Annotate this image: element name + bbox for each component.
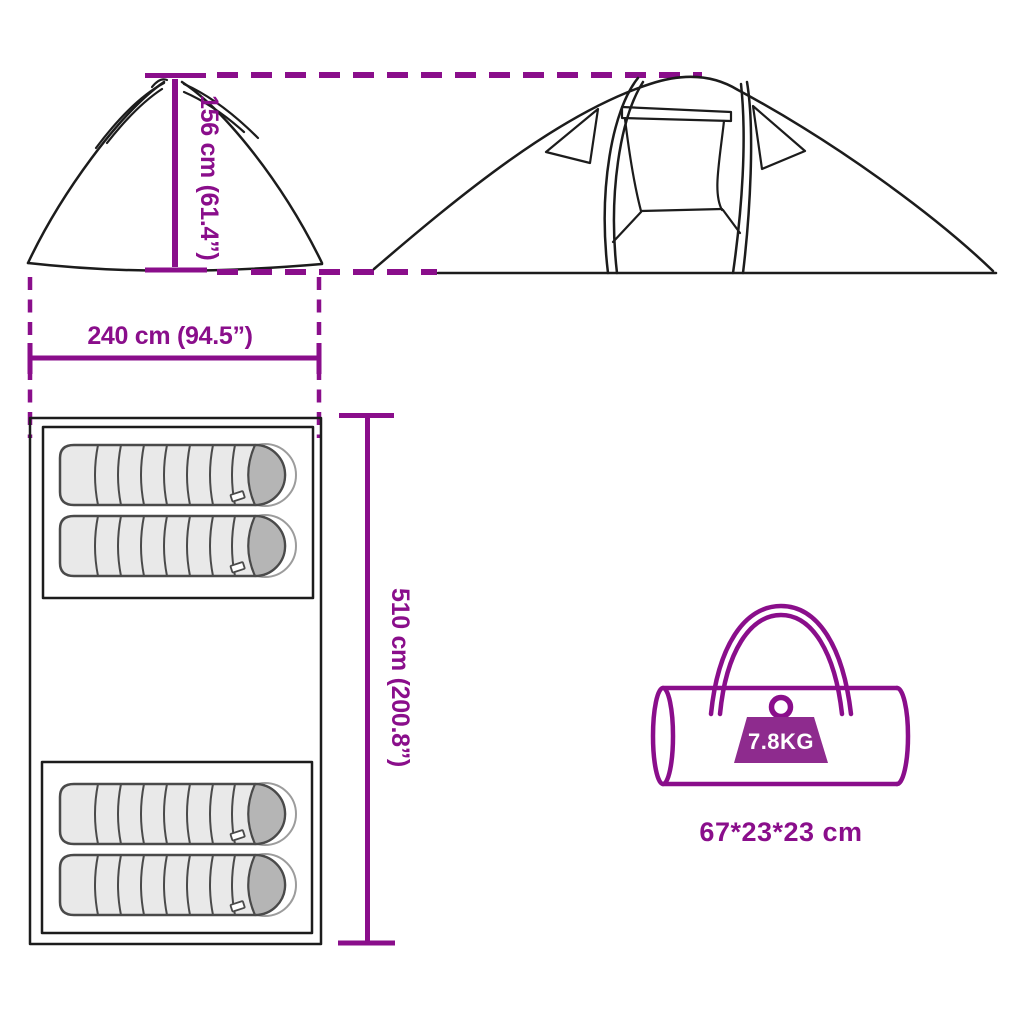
floor-plan-drawing [30, 418, 321, 944]
bag-right-cap [897, 688, 908, 784]
sleeping-bag-2 [60, 515, 296, 577]
height-dimension-label: 156 cm (61.4”) [194, 95, 224, 260]
sleeping-bag-4 [60, 854, 296, 916]
carry-bag-weight-label: 7.8KG [716, 729, 846, 755]
right-wing [753, 106, 805, 169]
left-wing [546, 109, 598, 163]
carry-bag-size-label: 67*23*23 cm [650, 816, 912, 848]
carry-bag-drawing [653, 606, 908, 784]
sleeping-bag-1 [60, 444, 296, 506]
height-dimension-lines [145, 75, 702, 272]
tent-dimension-diagram: 156 cm (61.4”) 240 cm (94.5”) 510 cm (20… [0, 0, 1024, 1024]
bag-left-cap [653, 688, 673, 784]
width-dimension-lines [30, 277, 319, 438]
sleeping-bag-3 [60, 783, 296, 845]
weight-handle-ring [772, 698, 791, 717]
width-dimension-label: 240 cm (94.5”) [50, 321, 290, 351]
diagram-line-art [0, 0, 1024, 1024]
length-dimension-label: 510 cm (200.8”) [385, 588, 415, 767]
tent-front-view-drawing [374, 77, 996, 273]
